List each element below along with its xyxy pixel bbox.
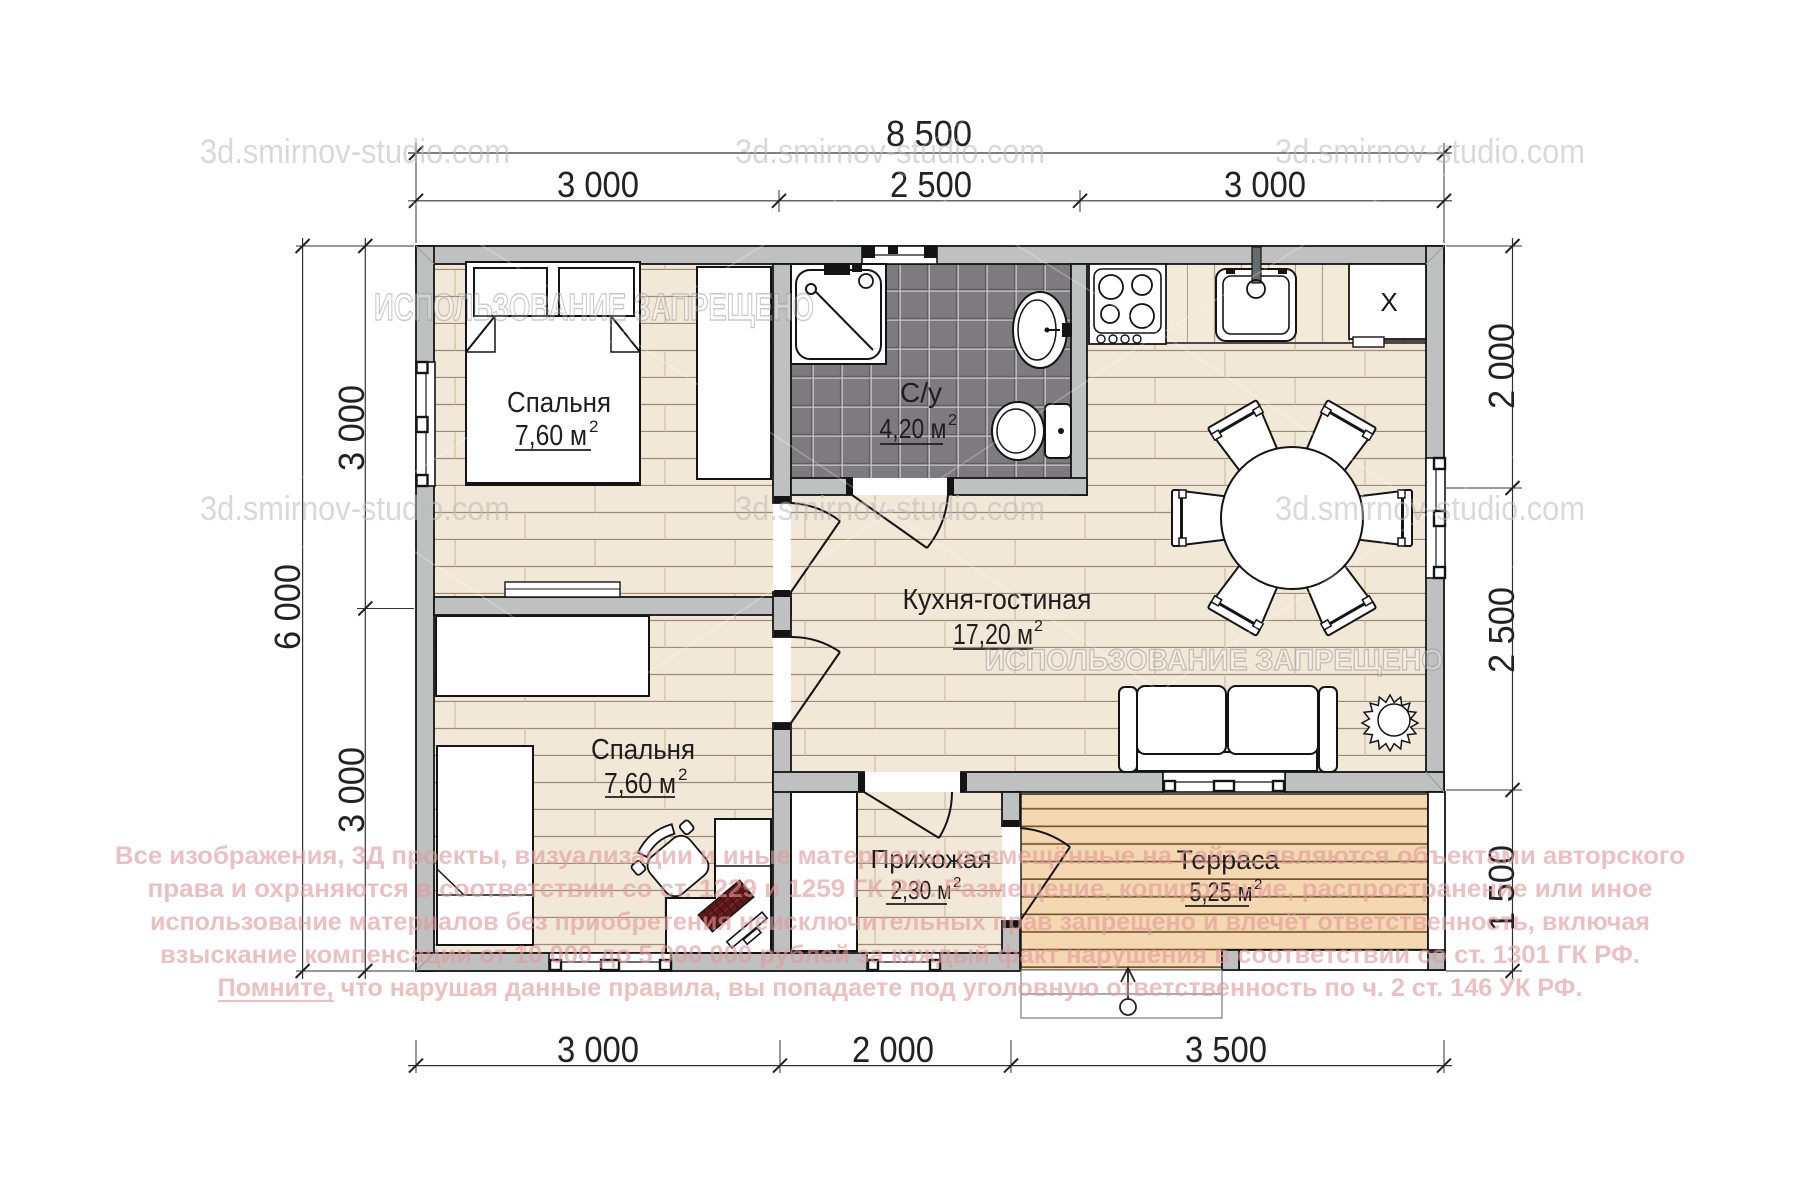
svg-text:3 000: 3 000	[331, 385, 372, 471]
svg-text:2: 2	[1034, 618, 1043, 635]
svg-text:3d.smirnov-studio.com: 3d.smirnov-studio.com	[735, 133, 1045, 171]
svg-text:права и охраняются в соответст: права и охраняются в соответствии со ст.…	[148, 875, 1653, 903]
svg-text:Кухня-гостиная: Кухня-гостиная	[903, 584, 1092, 616]
svg-text:Спальня: Спальня	[507, 387, 611, 419]
svg-text:Помните, что нарушая данные пр: Помните, что нарушая данные правила, вы …	[218, 974, 1583, 1002]
svg-text:Все изображения, 3Д проекты, в: Все изображения, 3Д проекты, визуализаци…	[115, 842, 1685, 870]
svg-text:2 500: 2 500	[1481, 587, 1522, 673]
svg-text:4,20 м: 4,20 м	[880, 413, 947, 444]
svg-text:3d.smirnov-studio.com: 3d.smirnov-studio.com	[1275, 490, 1585, 528]
svg-text:7,60 м: 7,60 м	[604, 768, 676, 800]
svg-text:6 000: 6 000	[267, 564, 308, 650]
svg-text:X: X	[1380, 287, 1397, 317]
svg-text:2: 2	[948, 412, 957, 429]
svg-text:3d.smirnov-studio.com: 3d.smirnov-studio.com	[735, 490, 1045, 528]
svg-text:использование материалов без п: использование материалов без приобретени…	[150, 908, 1650, 936]
svg-text:3 500: 3 500	[1185, 1029, 1267, 1070]
svg-text:3d.smirnov-studio.com: 3d.smirnov-studio.com	[200, 133, 510, 171]
svg-text:взыскание компенсации от 10 00: взыскание компенсации от 10 000 до 5 000…	[160, 941, 1640, 969]
svg-text:С/у: С/у	[900, 377, 942, 408]
svg-text:3d.smirnov-studio.com: 3d.smirnov-studio.com	[200, 490, 510, 528]
svg-text:3d.smirnov-studio.com: 3d.smirnov-studio.com	[1275, 133, 1585, 171]
svg-text:2 000: 2 000	[852, 1029, 934, 1070]
svg-text:7,60 м: 7,60 м	[515, 420, 587, 452]
svg-text:3 000: 3 000	[557, 164, 639, 205]
svg-text:ИСПОЛЬЗОВАНИЕ ЗАПРЕЩЕНО: ИСПОЛЬЗОВАНИЕ ЗАПРЕЩЕНО	[374, 287, 814, 329]
svg-text:2: 2	[589, 417, 598, 436]
svg-text:3 000: 3 000	[557, 1029, 639, 1070]
svg-text:Спальня: Спальня	[591, 734, 695, 766]
svg-text:ИСПОЛЬЗОВАНИЕ ЗАПРЕЩЕНО: ИСПОЛЬЗОВАНИЕ ЗАПРЕЩЕНО	[985, 644, 1444, 677]
svg-text:2: 2	[678, 765, 687, 784]
svg-text:2 000: 2 000	[1481, 323, 1522, 409]
svg-text:3 000: 3 000	[331, 747, 372, 833]
